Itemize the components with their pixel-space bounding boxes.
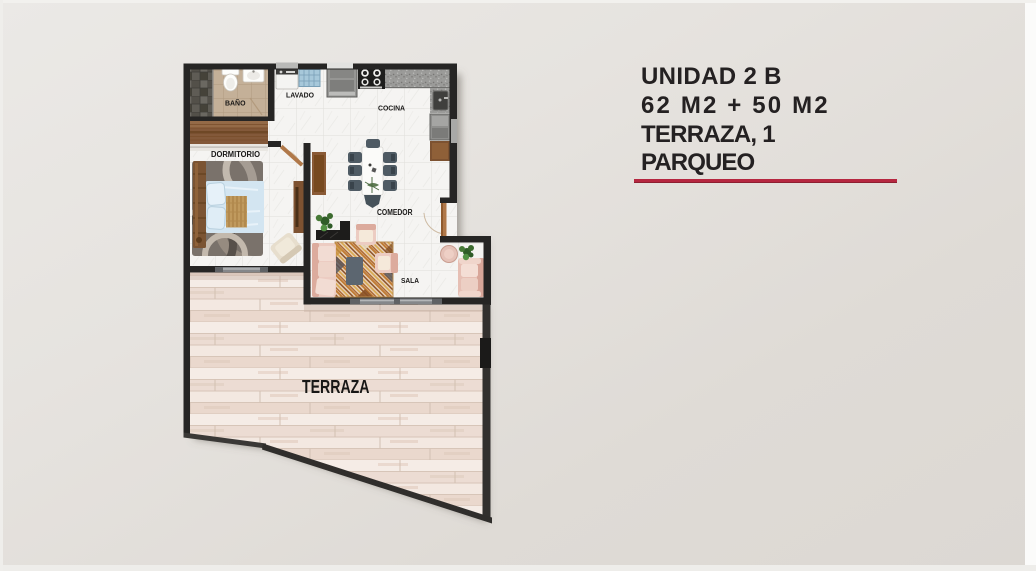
svg-text:COCINA: COCINA — [378, 104, 405, 113]
svg-text:COMEDOR: COMEDOR — [377, 207, 413, 217]
svg-text:LAVADO: LAVADO — [286, 91, 314, 100]
svg-text:SALA: SALA — [401, 276, 419, 285]
svg-text:BAÑO: BAÑO — [225, 99, 246, 108]
svg-text:DORMITORIO: DORMITORIO — [211, 149, 260, 159]
svg-text:TERRAZA: TERRAZA — [302, 376, 370, 397]
